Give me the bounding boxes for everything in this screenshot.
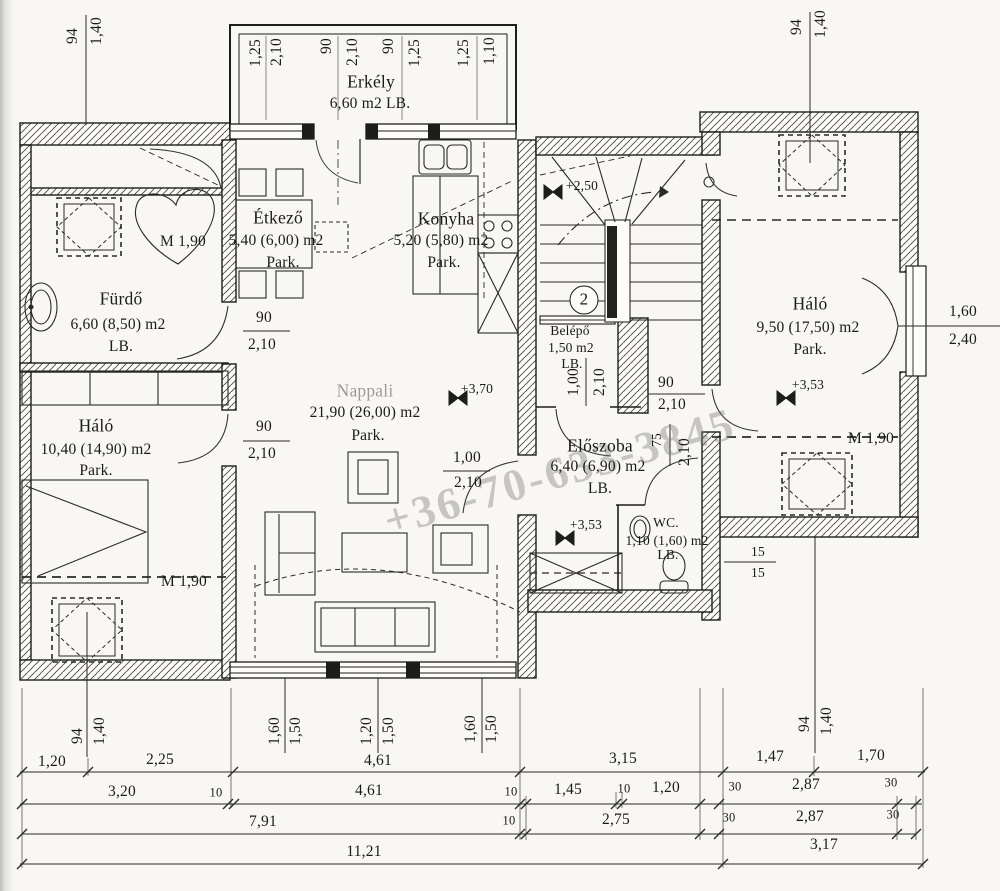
chain1-225: 2,25 [146,751,174,769]
door-nappali-h: 2,10 [454,474,482,492]
room-furdo-name: Fürdő [100,289,143,310]
dim-top-125b: 1,25 [406,39,424,67]
dim-top-94r: 94 [788,19,806,35]
chain2-30a: 30 [729,780,742,795]
door-furdo-h: 2,10 [248,336,276,354]
door-wc-h: 2,10 [676,438,694,466]
dim-top-125a: 1,25 [247,39,265,67]
room-halo-right-name: Háló [793,294,828,315]
chain3-791: 7,91 [249,813,277,831]
chain1-461: 4,61 [364,752,392,770]
room-erkely-area: 6,60 m2 LB. [330,95,411,113]
level-250: +2,50 [566,178,598,194]
chain2-10c: 10 [618,782,631,797]
room-furdo-floor: LB. [109,338,133,356]
dim-bot-140r: 1,40 [818,707,836,735]
room-halo-right-floor: Park. [793,341,826,359]
dim-top-210b: 2,10 [344,38,362,66]
chain1-315: 3,15 [609,750,637,768]
door-halol-h: 2,10 [248,445,276,463]
door-halor-w: 90 [658,374,674,392]
room-halo-left-area: 10,40 (14,90) m2 [41,441,152,459]
room-konyha-area: 5,20 (5,80) m2 [394,232,489,250]
door-wc-w: 75 [649,433,665,447]
room-erkely-name: Erkély [347,72,395,93]
chain1-170: 1,70 [857,747,885,765]
floor-plan-scan: +36-70-633-3845 941,401,252,10902,10901,… [0,0,1000,891]
dim-bot-160a: 1,60 [266,717,284,745]
chain3-275: 2,75 [602,811,630,829]
room-eloszoba-name: Előszoba [567,436,633,457]
room-etkezo-name: Étkező [253,208,303,229]
chain4-1121: 11,21 [346,843,381,861]
dim-bot-150b: 1,50 [380,717,398,745]
dim-top-94: 94 [64,28,82,44]
dim-top-90a: 90 [318,38,336,54]
chain4-317: 3,17 [810,836,838,854]
room-belepo-name: Belépő [550,323,589,339]
chain1-120: 1,20 [38,753,66,771]
chain3-287: 2,87 [796,808,824,826]
dim-bot-150a: 1,50 [287,717,305,745]
dim-15a: 15 [751,544,765,560]
dim-top-110: 1,10 [481,37,499,65]
room-eloszoba-floor: LB. [588,480,612,498]
room-nappali-name: Nappali [337,381,394,402]
window-french-w: 1,60 [949,303,977,321]
label-layer: 941,401,252,10902,10901,251,251,10941,40… [0,0,1000,891]
mline-halo-left: M 1,90 [161,573,207,591]
dim-bot-120: 1,20 [358,717,376,745]
chain2-10b: 10 [505,785,518,800]
dim-15b: 15 [751,565,765,581]
dim-bot-160b: 1,60 [462,715,480,743]
door-halor-h: 2,10 [658,396,686,414]
chain2-145: 1,45 [554,781,582,799]
door-belepo-w: 1,00 [565,368,583,396]
stair-number: 2 [570,286,599,315]
door-furdo-w: 90 [256,309,272,327]
chain3-30a: 30 [723,811,736,826]
dim-top-210a: 2,10 [268,38,286,66]
chain3-30b: 30 [887,808,900,823]
room-nappali-floor: Park. [351,427,384,445]
door-halol-w: 90 [256,418,272,436]
dim-bot-94: 94 [69,728,87,744]
door-nappali-w: 1,00 [453,449,481,467]
room-etkezo-floor: Park. [266,254,299,272]
room-furdo-area: 6,60 (8,50) m2 [71,316,166,334]
dim-bot-150c: 1,50 [483,715,501,743]
mline-halo-right: M 1,90 [848,430,894,448]
chain2-120: 1,20 [652,779,680,797]
level-370: +3,70 [461,381,493,397]
chain2-320: 3,20 [108,783,136,801]
room-etkezo-area: 5,40 (6,00) m2 [229,232,324,250]
mline-furdo: M 1,90 [160,233,206,251]
chain3-10: 10 [503,814,516,829]
chain2-287: 2,87 [792,776,820,794]
room-wc-name: WC. [653,515,679,531]
dim-bot-94r: 94 [796,716,814,732]
dim-top-140r: 1,40 [812,10,830,38]
window-french-h: 2,40 [949,331,977,349]
dim-top-140: 1,40 [88,17,106,45]
room-belepo-area: 1,50 m2 [548,340,594,356]
room-konyha-floor: Park. [427,254,460,272]
room-halo-left-floor: Park. [79,462,112,480]
chain2-10a: 10 [210,786,223,801]
dim-bot-140: 1,40 [91,717,109,745]
dim-top-90b: 90 [380,38,398,54]
chain2-461: 4,61 [355,782,383,800]
door-belepo-h: 2,10 [591,368,609,396]
room-halo-left-name: Háló [79,416,114,437]
room-konyha-name: Konyha [418,209,475,230]
room-wc-floor: LB. [657,547,678,563]
chain2-30b: 30 [885,776,898,791]
level-353-right: +3,53 [792,377,824,393]
room-nappali-area: 21,90 (26,00) m2 [310,404,421,422]
room-halo-right-area: 9,50 (17,50) m2 [757,319,860,337]
chain1-147: 1,47 [756,748,784,766]
dim-top-125c: 1,25 [455,39,473,67]
level-353-center: +3,53 [570,517,602,533]
room-eloszoba-area: 6,40 (6,90) m2 [551,458,646,476]
